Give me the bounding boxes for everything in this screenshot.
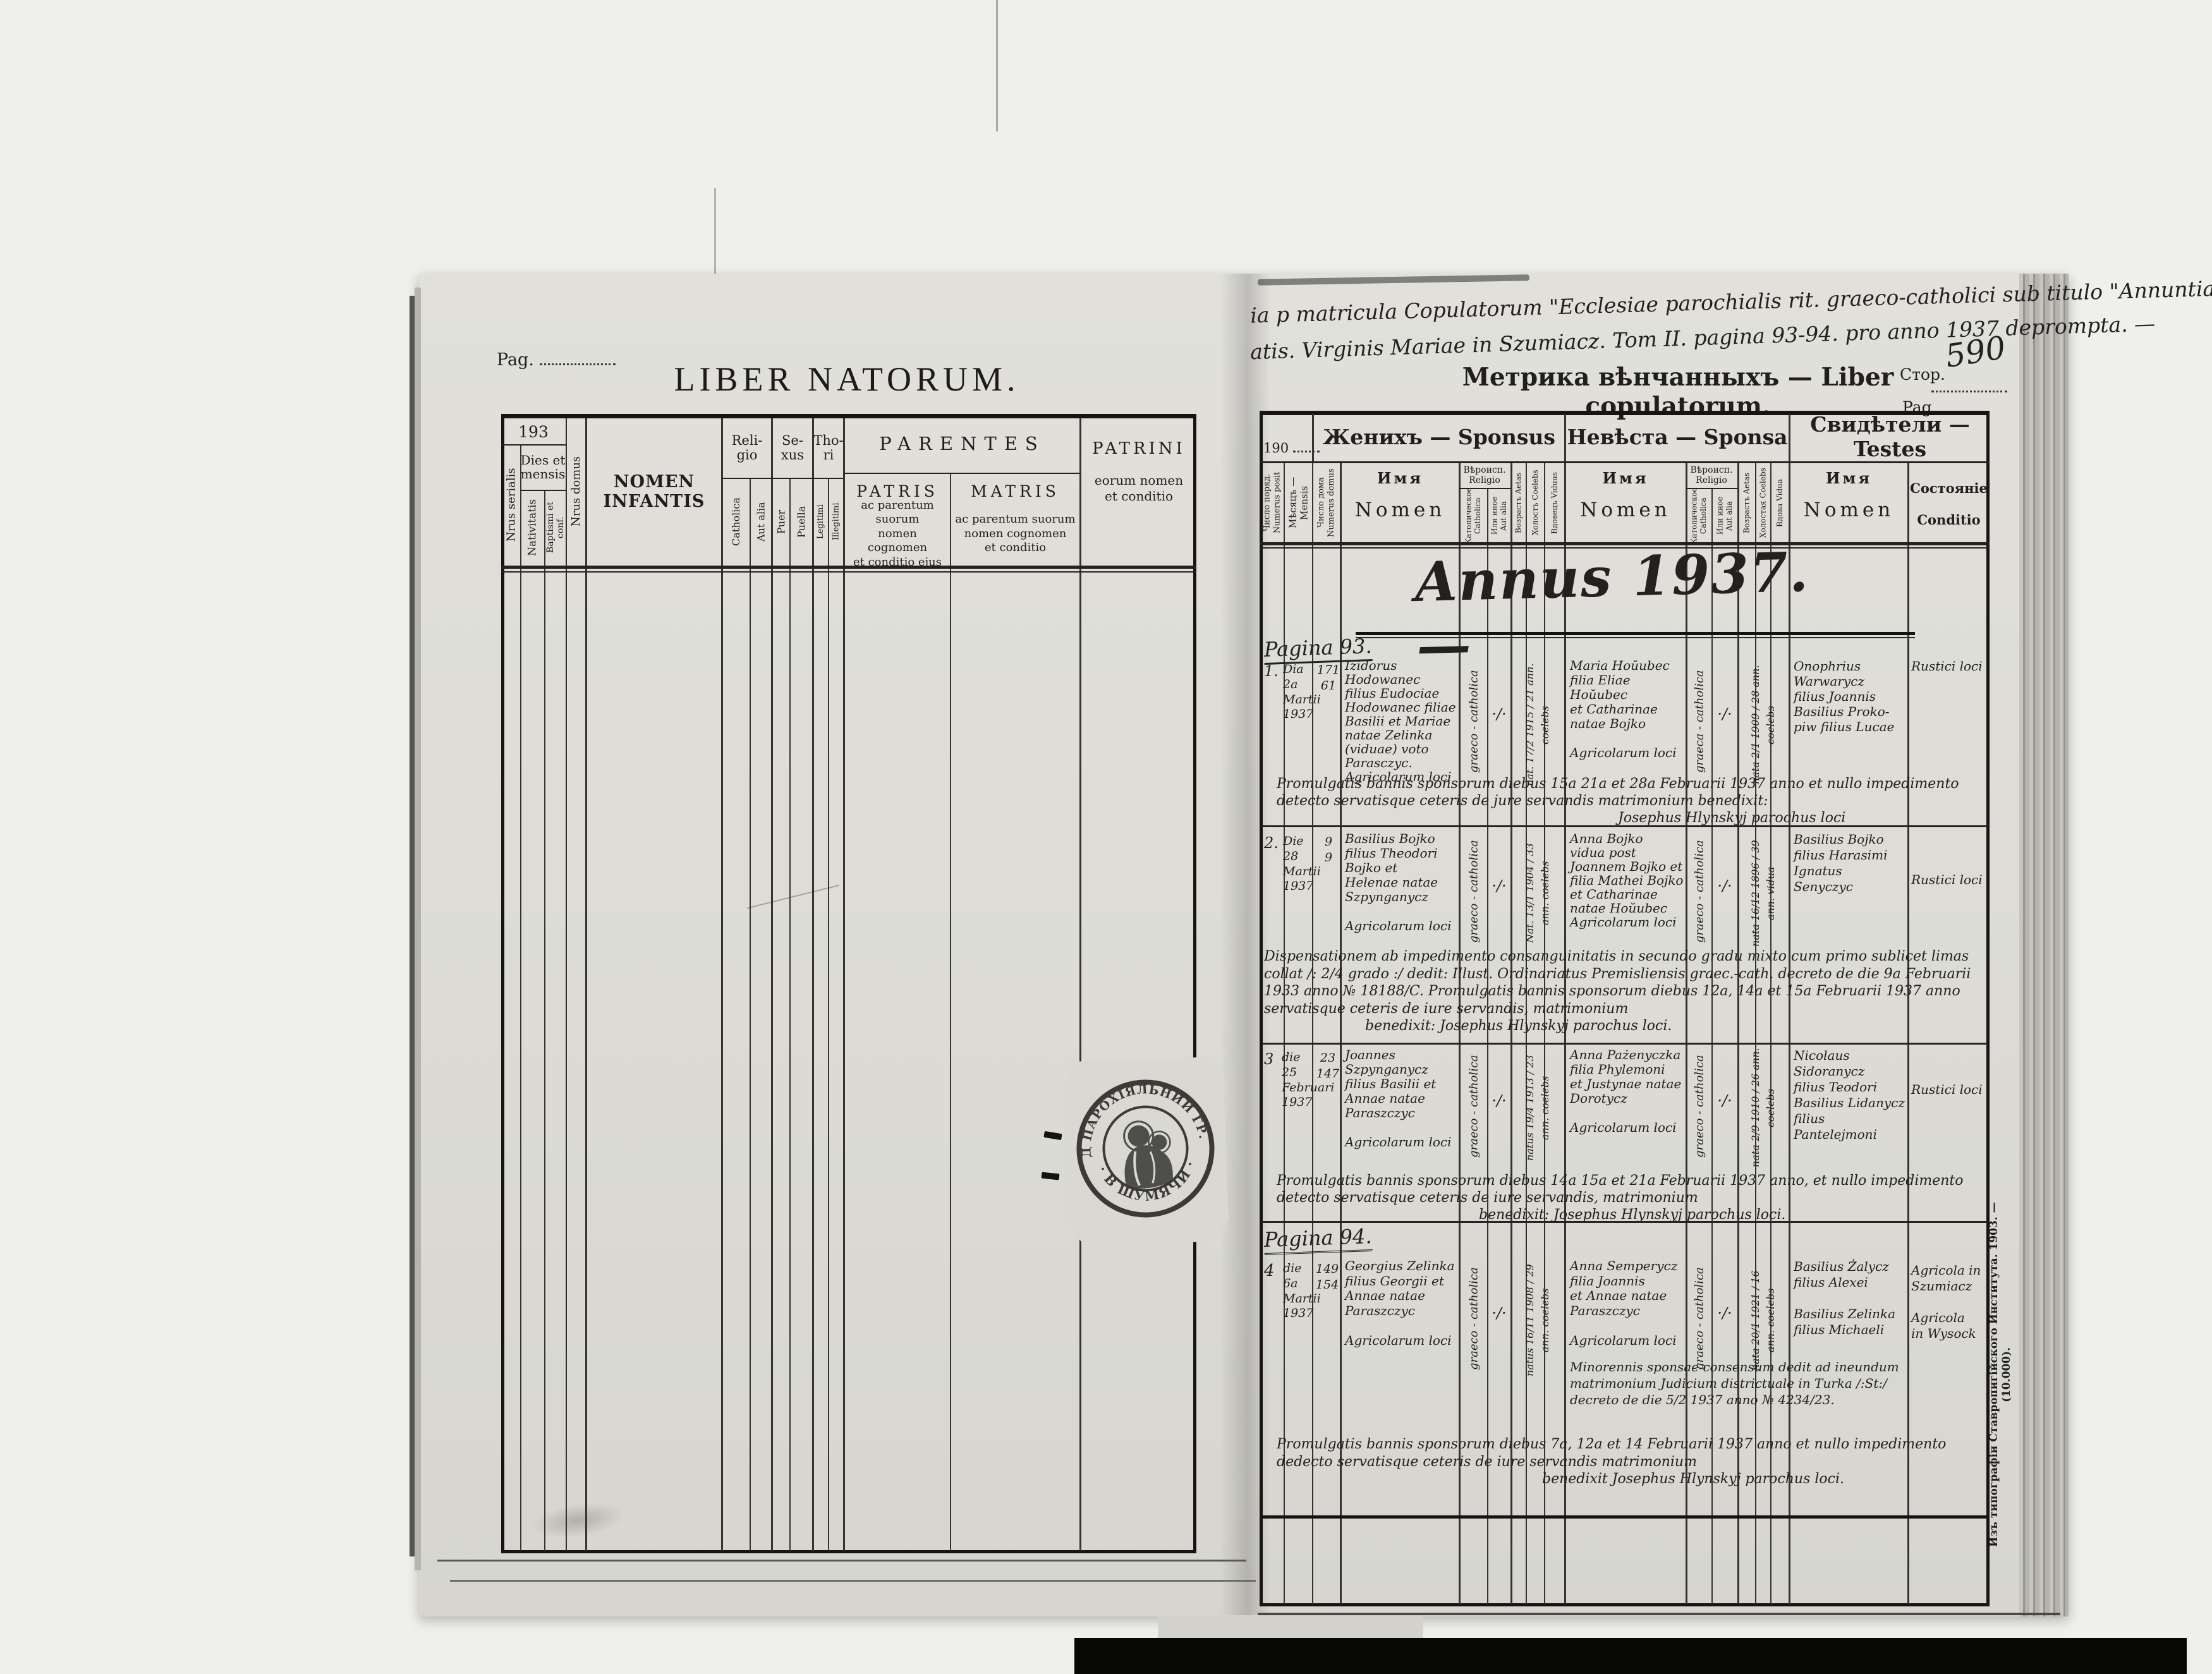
entry-bride-status: nata 2/1 1909 / 28 ann. coelebs (1739, 658, 1787, 791)
entry-note: Promulgatis bannis sponsorum diebus 14a … (1277, 1173, 1984, 1223)
entry-bride-tick: ·/· (1713, 1088, 1737, 1113)
entry-note-signature: benedixit: Josephus Hlynskyj parochus lo… (1365, 1017, 1986, 1035)
entry-bride-status: nata 16/12 1896 / 39 ann. vidua (1739, 832, 1787, 955)
pagina-94-label: Pagina 94. (1263, 1224, 1372, 1255)
entry-bride-tick: ·/· (1713, 701, 1737, 727)
nomen-cyr: Имя (1566, 469, 1685, 487)
entry-condition: Rustici loci (1911, 658, 1987, 674)
year-prefix-190-text: 190 (1263, 440, 1289, 456)
col-religio-bride: Вѣроисп. Religio (1687, 463, 1736, 487)
entry-separator (1262, 825, 1988, 827)
printers-imprint: Изъ типографіи Ставропигійского Институт… (1992, 1201, 2008, 1548)
entry-groom-status: natus 19/4 1913 / 23 ann. coelebs (1512, 1048, 1564, 1168)
stor-label: Стор. (1900, 365, 1945, 384)
col-nomen-bride: Имя Nomen (1566, 469, 1685, 540)
entry-groom-tick: ·/· (1488, 1088, 1510, 1113)
col-coelebs-groom: Холостъ Coelebs (1527, 463, 1543, 542)
right-page-liber-copulatorum: ia p matricula Copulatorum "Ecclesiae pa… (0, 0, 2212, 1674)
section-sponsus: Женихъ — Sponsus (1314, 413, 1564, 461)
entry-bride: Anna Pażenyczka filia Phylemoni et Justy… (1570, 1048, 1684, 1135)
col-catholica-groom: Католическое Catholica (1460, 490, 1486, 542)
col-mensis: Мѣсяцъ — Mensis (1285, 463, 1312, 542)
entry-groom-religion: graeco - catholica (1461, 1259, 1486, 1379)
page-edge-tab (1158, 1615, 1423, 1641)
entry-bride: Anna Bojko vidua post Joannem Bojko et f… (1570, 832, 1684, 929)
entry-num: 4 (1264, 1261, 1275, 1280)
nomen-lat: Nomen (1342, 499, 1459, 521)
entry-groom-status: natus 16/11 1908 / 29 ann. coelebs (1512, 1259, 1564, 1382)
col-aut-alia-groom: Или иное Aut alia (1488, 490, 1510, 542)
year-prefix-190: 190 (1263, 437, 1320, 456)
entry-date: Die 28 Martii 1937 (1283, 834, 1321, 894)
table-rule (1260, 461, 1990, 463)
entry-note-text: Promulgatis bannis sponsorum diebus 15a … (1277, 776, 1959, 809)
col-vidua-bride: Вдова Vidua (1771, 463, 1788, 542)
entry-condition: Rustici loci (1911, 1082, 1987, 1097)
entry-num: 2. (1264, 834, 1279, 852)
entry-bride-tick: ·/· (1713, 873, 1737, 899)
col-religio-groom: Вѣроисп. Religio (1460, 463, 1509, 487)
entry-groom-religion: graeco - catholica (1461, 1048, 1486, 1165)
entry-bride: Anna Semperycz filia Joannis et Annae na… (1570, 1259, 1684, 1349)
col-numerus-posit: Число поряд. Numerus posit (1261, 463, 1284, 542)
entry-groom: Georgius Zelinka filius Georgii et Annae… (1345, 1259, 1459, 1349)
col-nomen-witnesses: Имя Nomen (1790, 469, 1907, 540)
entry-num: 1. (1264, 662, 1279, 680)
bottom-heavy-rule (1262, 1515, 1988, 1519)
entry-bride-tick: ·/· (1713, 1301, 1737, 1326)
annus-underline (1356, 632, 1915, 635)
col-aut-alia-bride: Или иное Aut alia (1713, 490, 1737, 542)
entry-condition: Agricola in Szumiacz Agricola in Wysock (1911, 1263, 1988, 1342)
entry-groom-religion: graeco - catholica (1461, 832, 1486, 952)
entry-groom: Joannes Szpynganycz filius Basilii et An… (1345, 1048, 1457, 1149)
scanned-register-spread: Pag. LIBER NATORUM. 193 Dies et mensis N… (0, 0, 2212, 1674)
entry-groom: Basilius Bojko filius Theodori Bojko et … (1345, 832, 1457, 933)
entry-groom-status: nat. 17/2 1915 / 21 ann. coelebs (1512, 658, 1564, 791)
entry-bride-religion: graeco - catholica (1687, 832, 1711, 952)
annus-underline-thin (1356, 637, 1915, 638)
entry-witnesses: Onophrius Warwarycz filius Joannis Basil… (1794, 658, 1906, 734)
entry-note-text: Dispensationem ab impedimento consanguin… (1264, 949, 1971, 1017)
entry-bride-religion: graeca - catholica (1687, 658, 1711, 785)
entry-bride-religion: graeco - catholica (1687, 1048, 1711, 1165)
entry-note-text: Promulgatis bannis sponsorum diebus 14a … (1277, 1173, 1964, 1206)
entry-house-numbers: 171 61 (1316, 662, 1341, 693)
col-viduus-groom: Вдовецъ Viduus (1545, 463, 1564, 542)
dotted-line (1931, 391, 2007, 392)
entry-groom-religion: graeco - catholica (1461, 658, 1486, 785)
entry-witnesses: Nicolaus Sidoranycz filius Teodori Basil… (1794, 1048, 1907, 1143)
entry-house-numbers: 23 147 (1315, 1050, 1341, 1081)
entry-witnesses: Basilius Bojko filius Harasimi Ignatus S… (1794, 832, 1906, 895)
entry-bride-minor-note: Minorennis sponsae consensum dedit ad in… (1570, 1359, 1924, 1408)
entry-groom-status: Nat. 13/1 1904 / 33 ann. coelebs (1512, 832, 1564, 955)
ink-smear (1258, 274, 1529, 286)
col-catholica-bride: Католическое Catholica (1687, 490, 1711, 542)
section-sponsa: Невѣста — Sponsa (1566, 413, 1789, 461)
entry-groom: Izidorus Hodowanec filius Eudociae Hodow… (1345, 658, 1457, 784)
col-nomen-groom: Имя Nomen (1342, 469, 1459, 540)
entry-house-numbers: 9 9 (1317, 834, 1340, 865)
entry-num: 3 (1264, 1050, 1273, 1068)
entry-note-signature: benedixit Josephus Hlynskyj parochus loc… (1542, 1471, 1984, 1488)
entry-bride: Maria Hoŭubec filia Eliae Hoŭubec et Cat… (1570, 658, 1684, 760)
col-conditio: Состояніе Conditio (1909, 469, 1988, 540)
col-coelebs-bride: Холостая Coelebs (1756, 463, 1770, 542)
entry-date: Dia 2a Martii 1937 (1283, 662, 1321, 722)
entry-condition: Rustici loci (1911, 872, 1987, 887)
entry-groom-tick: ·/· (1488, 1301, 1510, 1326)
col-aetas-groom: Возрастъ Aetas (1512, 463, 1525, 542)
entry-bride-status: nata 2/9 1910 / 26 ann. coelebs (1739, 1048, 1787, 1168)
col-numerus-domus: Число дома Numerus domus (1313, 463, 1340, 542)
right-page-title: Метрика вѣнчанныхъ — Liber copulatorum. (1428, 374, 1928, 409)
entry-groom-tick: ·/· (1488, 701, 1510, 727)
entry-note: Promulgatis bannis sponsorum diebus 15a … (1277, 776, 1983, 827)
entry-separator (1262, 1043, 1988, 1045)
entry-note: Dispensationem ab impedimento consanguin… (1264, 948, 1986, 1035)
entry-note-text: Promulgatis bannis sponsorum diebus 7a, … (1277, 1436, 1946, 1470)
entry-note: Promulgatis bannis sponsorum diebus 7a, … (1277, 1436, 1984, 1488)
entry-witnesses: Basilius Żalycz filius Alexei Basilius Z… (1794, 1259, 1906, 1338)
nomen-lat: Nomen (1566, 499, 1685, 521)
nomen-lat: Nomen (1790, 499, 1907, 521)
scanner-black-strip (1074, 1638, 2187, 1674)
nomen-cyr: Имя (1790, 469, 1907, 487)
entry-groom-tick: ·/· (1488, 873, 1510, 899)
entry-note-signature: Josephus Hlynskyj parochus loci (1618, 810, 1983, 827)
entry-house-numbers: 149 154 (1313, 1261, 1341, 1292)
entry-separator (1262, 1221, 1988, 1223)
col-aetas-bride: Возрастъ Aetas (1739, 463, 1754, 542)
nomen-cyr: Имя (1342, 469, 1459, 487)
section-testes: Свидѣтели — Testes (1790, 413, 1990, 461)
